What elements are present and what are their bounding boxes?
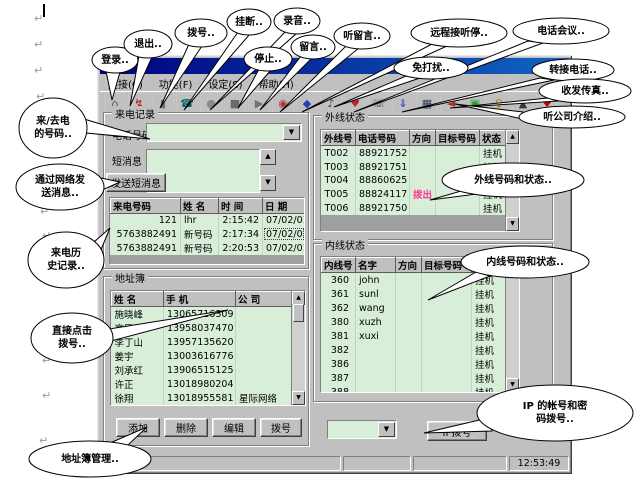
computer-icon[interactable]: ▦ — [416, 93, 438, 114]
tool-icon[interactable]: ▲ — [512, 93, 534, 114]
callout-record: 录音.. — [274, 8, 320, 34]
table-cell: 施晓峰 — [112, 307, 164, 322]
table-cell: 13065716309 — [164, 307, 236, 322]
paragraph-mark: ↵ — [40, 205, 49, 218]
message-icon[interactable]: ◆ — [296, 93, 318, 114]
table-row[interactable]: 388挂机 — [322, 385, 507, 393]
table-cell — [422, 385, 472, 393]
table-cell: 13003616776 — [164, 349, 236, 363]
column-header[interactable]: 名字 — [356, 258, 396, 273]
add-button[interactable]: 添加 — [116, 418, 160, 437]
table-cell: 13906515125 — [164, 363, 236, 377]
panel-address-book: 地址簿 姓 名手 机公 司 施晓峰13065716309高民1395803747… — [103, 276, 309, 446]
panel-title: 地址簿 — [112, 270, 148, 285]
table-cell — [396, 343, 422, 357]
chevron-down-icon[interactable]: ▼ — [283, 125, 300, 140]
column-header[interactable]: 方向 — [396, 258, 422, 273]
table-cell — [396, 287, 422, 301]
menu-settings[interactable]: 设定(S) — [208, 76, 242, 91]
table-cell — [396, 273, 422, 288]
table-cell — [396, 315, 422, 329]
table-cell — [422, 301, 472, 315]
table-cell — [480, 174, 507, 187]
callout-remote-listen: 远程接听停.. — [411, 19, 507, 47]
table-cell: 挂机 — [472, 287, 507, 301]
table-cell: john — [356, 273, 396, 288]
table-cell: 13018980204 — [164, 377, 236, 391]
table-cell: 07/02/01 — [263, 227, 305, 241]
table-row[interactable]: 李丁山13957135620 — [112, 335, 293, 349]
table-row[interactable]: 徐翔13018955581星际网络 — [112, 391, 293, 405]
column-header[interactable]: 姓 名 — [181, 199, 219, 214]
scrollbar[interactable]: ▲ ▼ — [291, 291, 305, 405]
table-cell — [396, 301, 422, 315]
paragraph-mark: ↵ — [34, 64, 43, 77]
table-cell — [396, 385, 422, 393]
table-cell — [422, 343, 472, 357]
table-cell: 姜宇 — [112, 349, 164, 363]
table-cell — [236, 363, 293, 377]
scroll-down-icon[interactable]: ▼ — [506, 378, 519, 392]
status-panel — [343, 456, 411, 471]
table-cell: 挂机 — [480, 201, 507, 215]
panel-title: 内线状态 — [322, 237, 368, 252]
table-row[interactable]: 387挂机 — [322, 371, 507, 385]
table-cell — [410, 160, 436, 174]
table-cell — [236, 307, 293, 322]
table-cell: 13018955581 — [164, 391, 236, 405]
column-header[interactable]: 状态 — [480, 131, 507, 146]
send-sms-button[interactable]: 发送短消息 — [106, 173, 166, 192]
table-cell: sunl — [356, 287, 396, 301]
table-cell: 88921752 — [356, 146, 410, 161]
scroll-down-icon[interactable]: ▼ — [260, 175, 276, 191]
table-cell — [356, 343, 396, 357]
scroll-up-icon[interactable]: ▲ — [506, 257, 519, 271]
call-history-list: 来电号码姓 名时 间日 期 121lhr2:15:4207/02/0157638… — [109, 197, 305, 265]
table-row[interactable]: 高民13958037470 — [112, 321, 293, 335]
table-cell: T004 — [322, 174, 356, 187]
column-header[interactable]: 时 间 — [219, 199, 263, 214]
speaker-icon[interactable]: ◄ — [440, 93, 462, 114]
status-panel — [100, 456, 341, 471]
callout-conference: 电话会议.. — [513, 18, 609, 44]
paragraph-mark: ↵ — [39, 434, 48, 447]
table-cell — [236, 377, 293, 391]
table-cell: xuzh — [356, 315, 396, 329]
column-header[interactable]: 内线号 — [322, 258, 356, 273]
scroll-up-icon[interactable]: ▲ — [506, 130, 519, 144]
paragraph-mark: ↵ — [42, 389, 51, 402]
paragraph-mark: ↵ — [42, 354, 51, 367]
sms-scrollbar[interactable]: ▲ ▼ — [260, 149, 274, 191]
scroll-up-icon[interactable]: ▲ — [292, 291, 305, 305]
table-cell — [410, 174, 436, 187]
ext-status-list: 外线号电话号码方向目标号码状态 T00288921752挂机T003889217… — [320, 129, 520, 232]
table-cell — [436, 201, 480, 215]
table-cell: 388 — [322, 385, 356, 393]
table-cell: wang — [356, 301, 396, 315]
delete-button[interactable]: 删除 — [164, 418, 208, 437]
table-cell: 星际网络 — [236, 391, 293, 405]
table-cell: 挂机 — [472, 329, 507, 343]
scroll-down-icon[interactable]: ▼ — [506, 217, 519, 231]
callout-bubble — [16, 164, 104, 210]
column-header[interactable]: 来电号码 — [111, 199, 181, 214]
status-bar: 12:53:49 — [100, 456, 569, 471]
table-cell: 2:20:53 — [219, 241, 263, 255]
callout-exit: 退出.. — [124, 30, 172, 58]
table-cell: 挂机 — [480, 160, 507, 174]
phone2-icon[interactable]: ☏ — [368, 93, 390, 114]
table-cell: 挂机 — [472, 357, 507, 371]
column-header[interactable]: 目标号码 — [422, 258, 472, 273]
paragraph-mark: ↵ — [34, 38, 43, 51]
table-row[interactable]: 360john挂机 — [322, 273, 507, 288]
callout-bubble — [274, 8, 320, 34]
address-book-list: 姓 名手 机公 司 施晓峰13065716309高民13958037470李丁山… — [110, 290, 306, 406]
table-cell — [410, 201, 436, 215]
table-cell — [410, 146, 436, 161]
table-cell — [356, 385, 396, 393]
table-cell: 2:17:34 — [219, 227, 263, 241]
phone-number-combobox[interactable]: ▼ — [146, 123, 302, 142]
table-cell — [356, 371, 396, 385]
table-cell: T003 — [322, 160, 356, 174]
paragraph-mark: ↵ — [42, 229, 51, 242]
word-page: ↵ ↵ ↵ ↵ ↵ ↵ ↵ ↵ ↵ 连接(C) 功能(F) 设定(S) 帮助(H… — [0, 0, 636, 480]
ip-dial-button[interactable]: IP拨号 — [427, 421, 487, 441]
table-cell: 5763882491 — [111, 241, 181, 255]
table-cell: 拨出 — [410, 187, 436, 201]
ip-account-combobox[interactable]: ▼ — [327, 420, 397, 439]
table-cell: 徐翔 — [112, 391, 164, 405]
chevron-down-icon[interactable]: ▼ — [378, 422, 395, 437]
table-cell — [422, 329, 472, 343]
table-cell — [422, 357, 472, 371]
table-cell: 13958037470 — [164, 321, 236, 335]
table-cell — [236, 335, 293, 349]
callout-bubble — [28, 232, 104, 288]
table-cell: 381 — [322, 329, 356, 343]
column-header[interactable]: 公 司 — [236, 292, 293, 307]
table-cell: 许正 — [112, 377, 164, 391]
scroll-down-icon[interactable]: ▼ — [292, 391, 305, 405]
table-cell: 07/02/01 — [263, 214, 305, 228]
table-cell — [422, 371, 472, 385]
table-row[interactable]: 361sunl挂机 — [322, 287, 507, 301]
flag-icon[interactable]: ♥ — [536, 93, 558, 114]
table-cell: 挂机 — [472, 273, 507, 288]
table-cell — [396, 371, 422, 385]
table-row[interactable]: T00588824117拨出挂机 — [322, 187, 507, 201]
table-cell: 挂机 — [472, 371, 507, 385]
table-cell: 88860625 — [356, 174, 410, 187]
table-cell — [436, 174, 480, 187]
hangup-icon[interactable]: ● — [200, 93, 222, 114]
callout-listen-message: 听留言.. — [334, 23, 390, 49]
play-icon[interactable]: ▶ — [248, 93, 270, 114]
column-header[interactable]: 姓 名 — [112, 292, 164, 307]
record-icon[interactable]: ■ — [224, 93, 246, 114]
table-cell — [396, 357, 422, 371]
table-cell — [422, 315, 472, 329]
table-row[interactable]: T00288921752挂机 — [322, 146, 507, 161]
table-cell: 382 — [322, 343, 356, 357]
table-cell: 07/02/01 — [263, 241, 305, 255]
table-cell: T002 — [322, 146, 356, 161]
table-row[interactable]: T00688921750挂机 — [322, 201, 507, 215]
panel-call-record: 来电记录 电话号码 ▼ 短消息 ▲ ▼ 发送短消息 来电号码姓 名时 间日 期 … — [103, 112, 309, 269]
scrollbar-thumb[interactable] — [293, 304, 304, 322]
table-cell — [396, 329, 422, 343]
window-control-button[interactable] — [551, 60, 567, 74]
clock: 12:53:49 — [509, 456, 569, 471]
table-cell: 386 — [322, 357, 356, 371]
table-cell: 361 — [322, 287, 356, 301]
column-header[interactable]: 目标号码 — [436, 131, 480, 146]
menu-bar: 连接(C) 功能(F) 设定(S) 帮助(H) — [100, 76, 569, 90]
callout-dial: 拨号.. — [175, 19, 227, 47]
paragraph-mark: ↵ — [36, 90, 45, 103]
column-header[interactable]: 方向 — [410, 131, 436, 146]
callout-bubble — [513, 18, 609, 44]
table-cell: T006 — [322, 201, 356, 215]
scroll-up-icon[interactable]: ▲ — [260, 149, 276, 165]
table-cell: 挂机 — [472, 385, 507, 393]
table-cell: 360 — [322, 273, 356, 288]
sms-label: 短消息 — [112, 153, 142, 168]
int-status-list: 内线号名字方向目标号码状态 360john挂机361sunl挂机362wang挂… — [320, 256, 520, 393]
table-cell: 高民 — [112, 321, 164, 335]
combobox-field[interactable] — [148, 125, 300, 140]
scrollbar[interactable]: ▲ ▼ — [505, 130, 519, 231]
callout-bubble — [411, 19, 507, 47]
table-row[interactable]: 382挂机 — [322, 343, 507, 357]
column-header[interactable]: 状态 — [472, 258, 507, 273]
dial-button[interactable]: 拨号 — [260, 418, 302, 437]
table-cell — [236, 321, 293, 335]
table-cell: 新号码 — [181, 227, 219, 241]
status-panel — [413, 456, 507, 471]
table-cell: 2:15:42 — [219, 214, 263, 228]
callout-bubble — [227, 9, 271, 35]
title-bar[interactable] — [100, 58, 569, 74]
table-cell: 刘承红 — [112, 363, 164, 377]
callout-bubble — [124, 30, 172, 58]
panel-ext-status: 外线状态 外线号电话号码方向目标号码状态 T00288921752挂机T0038… — [313, 115, 553, 240]
menu-connect[interactable]: 连接(C) — [108, 76, 143, 91]
table-cell: 362 — [322, 301, 356, 315]
table-row[interactable]: 362wang挂机 — [322, 301, 507, 315]
callout-bubble — [175, 19, 227, 47]
table-row[interactable]: 5763882491新号码2:20:5307/02/01 — [111, 241, 305, 255]
table-cell — [356, 357, 396, 371]
panel-title: 外线状态 — [322, 109, 368, 124]
callout-bubble — [19, 98, 87, 158]
table-row[interactable]: 5763882491新号码2:17:3407/02/01 — [111, 227, 305, 241]
table-cell — [436, 146, 480, 161]
paragraph-mark: ↵ — [34, 12, 43, 25]
table-cell: 挂机 — [480, 146, 507, 161]
table-cell: 88824117 — [356, 187, 410, 201]
table-cell: 121 — [111, 214, 181, 228]
table-cell: 挂机 — [480, 187, 507, 201]
table-cell: 新号码 — [181, 241, 219, 255]
download-icon[interactable]: ⇓ — [392, 93, 414, 114]
table-row[interactable]: 施晓峰13065716309 — [112, 307, 293, 322]
panel-title: 来电记录 — [112, 106, 158, 121]
table-cell — [436, 160, 480, 174]
table-row[interactable]: T00388921751挂机 — [322, 160, 507, 174]
menu-help[interactable]: 帮助(H) — [259, 76, 294, 91]
dial-icon[interactable]: ☎ — [176, 93, 198, 114]
app-window: 连接(C) 功能(F) 设定(S) 帮助(H) ⌂↯▮☎●■▶◉◆♪♥☏⇓▦◄▣… — [97, 55, 572, 474]
column-header[interactable]: 外线号 — [322, 131, 356, 146]
callout-inout-number: 来/去电 的号码.. — [19, 98, 87, 158]
scrollbar[interactable]: ▲ ▼ — [505, 257, 519, 392]
table-row[interactable]: 380xuzh挂机 — [322, 315, 507, 329]
table-cell: 李丁山 — [112, 335, 164, 349]
table-cell: 挂机 — [472, 301, 507, 315]
menu-function[interactable]: 功能(F) — [159, 76, 193, 91]
edit-button[interactable]: 编辑 — [212, 418, 256, 437]
table-cell: 380 — [322, 315, 356, 329]
table-cell: T005 — [322, 187, 356, 201]
table-cell: 5763882491 — [111, 227, 181, 241]
table-cell — [422, 273, 472, 288]
table-row[interactable]: 姜宇13003616776 — [112, 349, 293, 363]
text-cursor — [43, 4, 45, 17]
table-row[interactable]: 386挂机 — [322, 357, 507, 371]
table-row[interactable]: 381xuxi挂机 — [322, 329, 507, 343]
callout-net-message: 通过网络发 送消息.. — [16, 164, 104, 210]
table-cell: xuxi — [356, 329, 396, 343]
table-cell: 88921751 — [356, 160, 410, 174]
table-cell: 挂机 — [472, 315, 507, 329]
column-header[interactable]: 电话号码 — [356, 131, 410, 146]
table-cell — [422, 287, 472, 301]
table-cell — [436, 187, 480, 201]
callout-bubble — [334, 23, 390, 49]
table-row[interactable]: 121lhr2:15:4207/02/01 — [111, 214, 305, 228]
table-cell — [236, 349, 293, 363]
key-icon[interactable]: ♀ — [488, 93, 510, 114]
table-cell: 88921750 — [356, 201, 410, 215]
table-cell: 13957135620 — [164, 335, 236, 349]
panel-int-status: 内线状态 内线号名字方向目标号码状态 360john挂机361sunl挂机362… — [313, 243, 553, 402]
table-cell: 挂机 — [472, 343, 507, 357]
callout-hangup: 挂断.. — [227, 9, 271, 35]
exit-door-icon[interactable]: ▣ — [464, 93, 486, 114]
table-row[interactable]: 许正13018980204 — [112, 377, 293, 391]
table-row[interactable]: T00488860625 — [322, 174, 507, 187]
table-cell: 387 — [322, 371, 356, 385]
callout-call-history: 来电历 史记录.. — [28, 232, 104, 288]
ball-icon[interactable]: ◉ — [272, 93, 294, 114]
table-cell: lhr — [181, 214, 219, 228]
table-row[interactable]: 刘承红13906515125 — [112, 363, 293, 377]
column-header[interactable]: 日 期 — [263, 199, 305, 214]
column-header[interactable]: 手 机 — [164, 292, 236, 307]
